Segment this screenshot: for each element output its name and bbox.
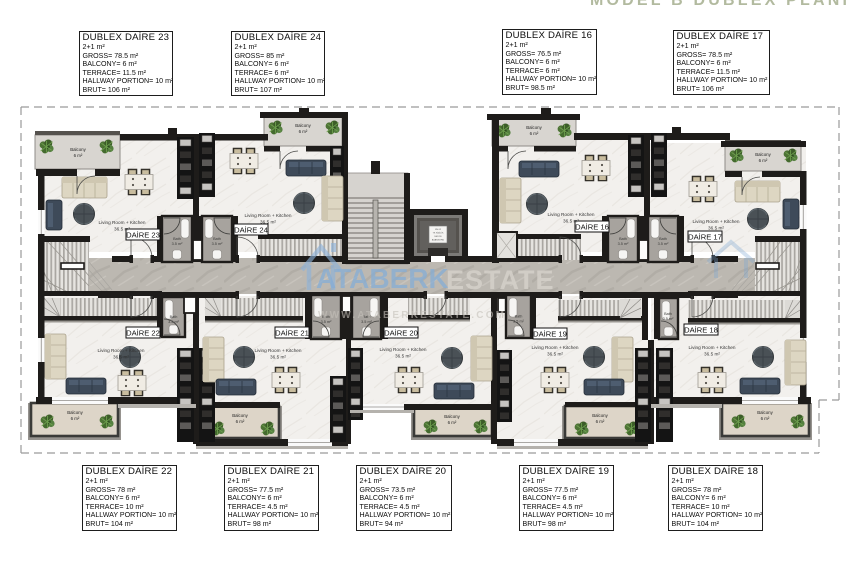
svg-text:ASANSÖRÜ: ASANSÖRÜ [432, 239, 445, 242]
svg-text:Living Room + Kitchen: Living Room + Kitchen [98, 220, 145, 225]
svg-text:Living Room + Kitchen: Living Room + Kitchen [531, 345, 578, 350]
svg-text:Balcony: Balcony [295, 123, 311, 128]
svg-text:Living Room + Kitchen: Living Room + Kitchen [254, 348, 301, 353]
svg-text:36.5 m²: 36.5 m² [704, 352, 720, 357]
svg-text:3.5 m²: 3.5 m² [168, 320, 179, 324]
svg-text:6 m²: 6 m² [759, 158, 768, 163]
svg-text:Balcony: Balcony [526, 125, 542, 130]
svg-text:3.5 m²: 3.5 m² [212, 242, 223, 246]
svg-text:Balcony: Balcony [755, 152, 771, 157]
svg-text:DAİRE 17: DAİRE 17 [688, 233, 722, 242]
svg-text:36.5 m²: 36.5 m² [563, 219, 579, 224]
svg-text:ESTATE: ESTATE [446, 265, 555, 295]
svg-text:36.5 m²: 36.5 m² [547, 352, 563, 357]
svg-text:6 m²: 6 m² [299, 129, 308, 134]
svg-text:Bath: Bath [170, 315, 178, 319]
svg-text:6 m²: 6 m² [761, 416, 770, 421]
svg-text:WWW.ATABERKESTATE.COM: WWW.ATABERKESTATE.COM [318, 310, 506, 321]
svg-text:ATABERK: ATABERK [316, 263, 449, 294]
svg-text:MODEL B DUBLEX PLANI: MODEL B DUBLEX PLANI [590, 0, 850, 9]
svg-text:TK KİŞİLİK: TK KİŞİLİK [433, 232, 444, 235]
svg-text:DAİRE 22: DAİRE 22 [126, 329, 160, 338]
svg-text:6 m²: 6 m² [448, 420, 457, 425]
svg-text:Living Room + Kitchen: Living Room + Kitchen [688, 345, 735, 350]
svg-text:36.5 m²: 36.5 m² [114, 227, 130, 232]
svg-text:Balcony: Balcony [232, 413, 248, 418]
svg-text:3.5 m²: 3.5 m² [618, 242, 629, 246]
svg-text:36.5 m²: 36.5 m² [708, 226, 724, 231]
svg-text:Balcony: Balcony [757, 410, 773, 415]
svg-text:Living Room + Kitchen: Living Room + Kitchen [547, 212, 594, 217]
svg-text:Living Room + Kitchen: Living Room + Kitchen [97, 348, 144, 353]
svg-text:Balcony: Balcony [70, 147, 86, 152]
svg-text:6 m²: 6 m² [530, 131, 539, 136]
svg-text:Balcony: Balcony [444, 414, 460, 419]
svg-text:Living Room + Kitchen: Living Room + Kitchen [379, 347, 426, 352]
svg-text:36.5 m²: 36.5 m² [260, 220, 276, 225]
svg-text:DAİRE 20: DAİRE 20 [384, 329, 418, 338]
svg-text:3.5 m²: 3.5 m² [663, 317, 674, 321]
svg-text:Living Room + Kitchen: Living Room + Kitchen [244, 213, 291, 218]
svg-text:36.5 m²: 36.5 m² [395, 354, 411, 359]
svg-text:36.5 m²: 36.5 m² [270, 355, 286, 360]
svg-text:Bath: Bath [664, 312, 672, 316]
svg-text:Bath: Bath [659, 237, 667, 241]
svg-text:Living Room + Kitchen: Living Room + Kitchen [692, 219, 739, 224]
svg-text:3.5 m²: 3.5 m² [172, 242, 183, 246]
svg-text:Bath: Bath [213, 237, 221, 241]
svg-text:DAİRE 19: DAİRE 19 [533, 330, 567, 339]
svg-text:Bath: Bath [173, 237, 181, 241]
svg-text:6 m²: 6 m² [596, 419, 605, 424]
svg-text:DAİRE 24: DAİRE 24 [234, 226, 268, 235]
svg-text:DAİRE 23: DAİRE 23 [126, 231, 160, 240]
svg-text:3.5 m²: 3.5 m² [658, 242, 669, 246]
svg-text:SN 62: SN 62 [435, 229, 442, 231]
svg-text:6 m²: 6 m² [71, 416, 80, 421]
svg-text:3.5 m²: 3.5 m² [513, 320, 524, 324]
svg-text:Bath: Bath [619, 237, 627, 241]
svg-text:6 m²: 6 m² [74, 153, 83, 158]
svg-text:Balcony: Balcony [67, 410, 83, 415]
svg-text:DAİRE 21: DAİRE 21 [275, 329, 309, 338]
svg-text:SEDYE: SEDYE [434, 236, 442, 238]
svg-text:36.5 m²: 36.5 m² [113, 355, 129, 360]
svg-text:DAİRE 18: DAİRE 18 [684, 326, 718, 335]
svg-text:DAİRE 16: DAİRE 16 [575, 223, 609, 232]
svg-text:Balcony: Balcony [592, 413, 608, 418]
svg-text:Bath: Bath [515, 315, 523, 319]
svg-text:6 m²: 6 m² [236, 419, 245, 424]
